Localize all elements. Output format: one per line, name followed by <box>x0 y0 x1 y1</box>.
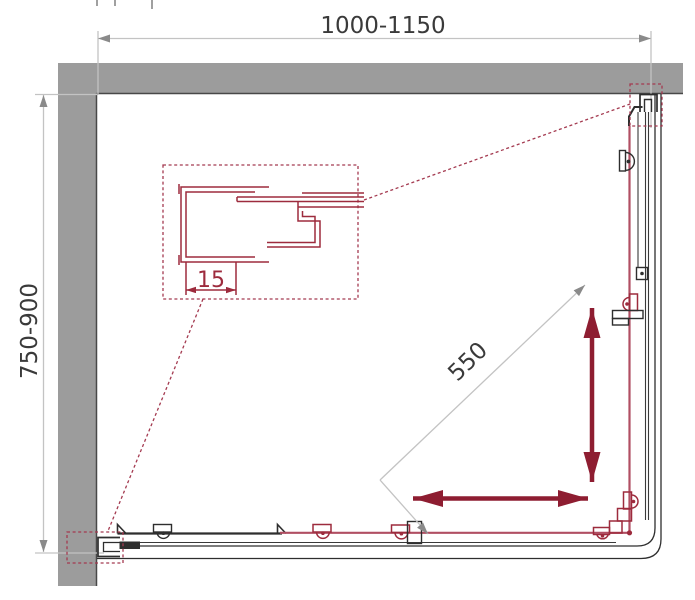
bottom-roller-icon-1 <box>313 525 331 539</box>
right-fixed-glass <box>646 112 649 520</box>
drawing-canvas: 1000-1150 750-900 <box>0 0 695 600</box>
wall-profile-bottom-left-inner <box>104 543 121 552</box>
right-panel-assembly <box>97 94 661 559</box>
wall-profile-bottom-left <box>98 538 120 557</box>
detail-view-box <box>163 165 358 299</box>
profile-width-dimension: 15 <box>186 262 236 295</box>
right-roller-icon <box>623 294 637 311</box>
bottom-panel-assembly <box>98 492 638 557</box>
top-edge-stubs <box>97 0 152 9</box>
depth-dimension-label: 750-900 <box>17 283 43 379</box>
right-roller-bracket <box>613 311 644 326</box>
profile-cross-section <box>179 184 364 265</box>
width-dimension-label: 1000-1150 <box>320 13 445 39</box>
door-corner-junction <box>627 530 632 535</box>
frame-outer-line <box>97 94 661 559</box>
walls <box>58 63 683 586</box>
shower-enclosure-plan-drawing: 1000-1150 750-900 <box>0 0 695 600</box>
door-handle-icon <box>620 151 635 172</box>
callout-leader-top-right <box>364 104 630 200</box>
bottom-roller-icon-2 <box>392 525 410 539</box>
frame-inner-line <box>140 94 655 546</box>
entry-diagonal-leg-upper <box>380 285 585 480</box>
top-wall <box>58 63 683 93</box>
left-wall <box>58 63 96 586</box>
detail-callout: 15 <box>67 84 662 563</box>
entry-diagonal-leg-lower <box>380 480 428 534</box>
callout-leader-bottom-left <box>108 299 203 531</box>
profile-width-label: 15 <box>197 268 225 293</box>
bottom-roller-black-icon <box>154 525 172 539</box>
slide-direction-arrows <box>413 308 592 499</box>
